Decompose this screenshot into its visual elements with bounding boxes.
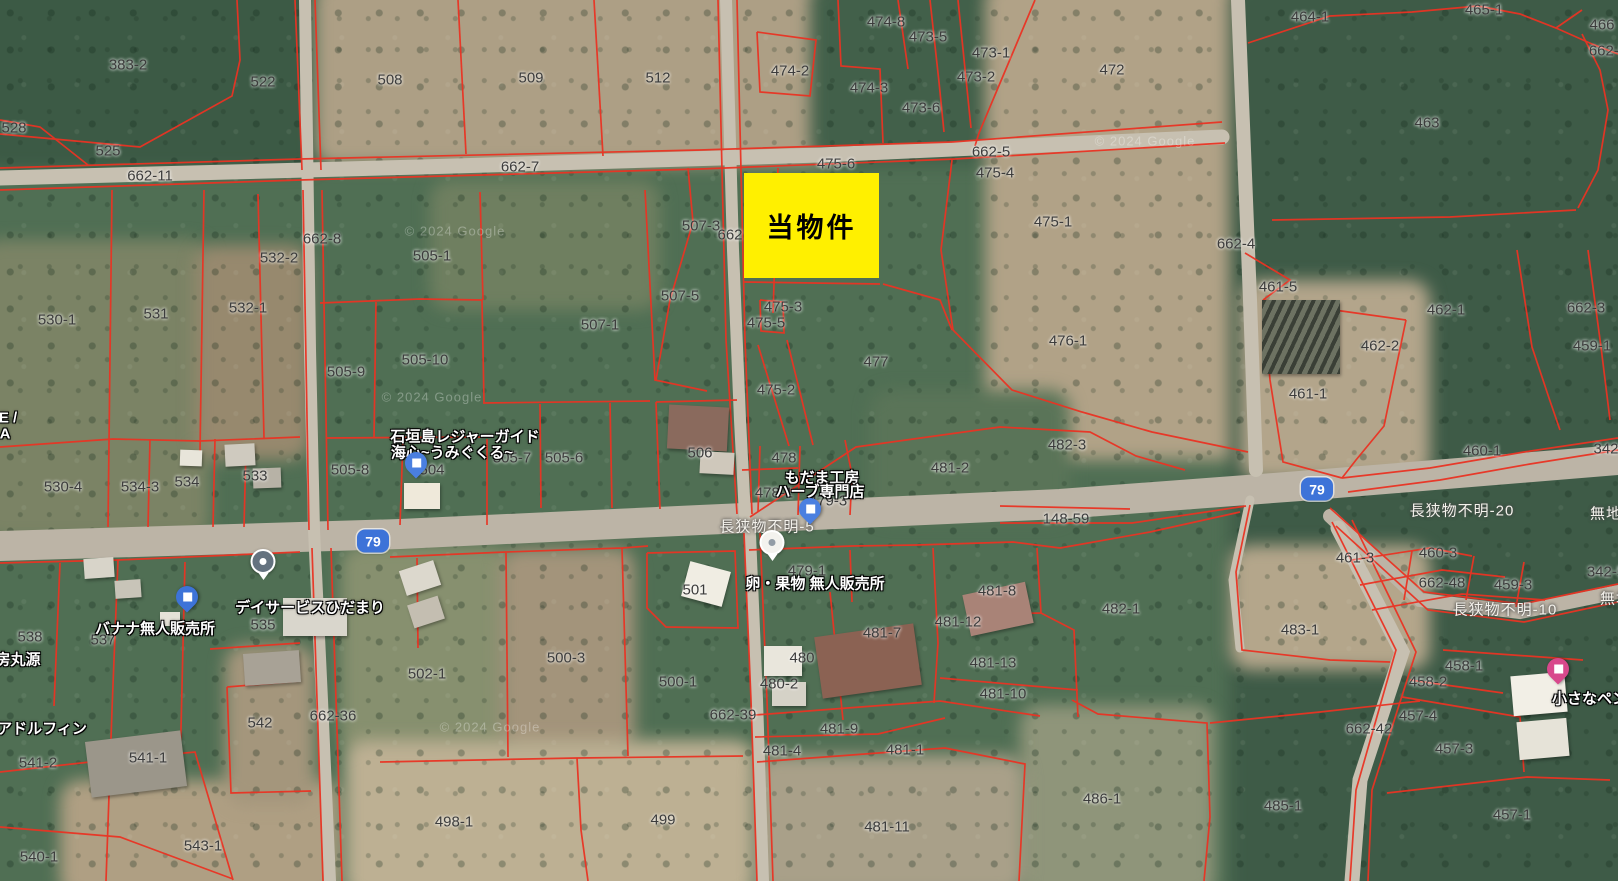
- herb-shop-pin[interactable]: [799, 498, 821, 520]
- dayservice-pin-icon: [251, 549, 276, 574]
- pension-pin-icon: [1542, 653, 1573, 684]
- satellite-map[interactable]: 383-2522508509512528525662-11662-7662-84…: [0, 0, 1618, 881]
- egg-fruit-stand-pin[interactable]: [760, 530, 785, 566]
- banana-stand-pin[interactable]: [176, 586, 198, 608]
- marker-layer: [0, 0, 1618, 881]
- pension-pin[interactable]: [1547, 658, 1569, 680]
- egg-fruit-stand-pin-icon: [760, 530, 785, 555]
- banana-stand-pin-icon: [171, 581, 202, 612]
- dayservice-pin[interactable]: [251, 549, 276, 585]
- leisure-guide-pin[interactable]: [405, 452, 427, 474]
- leisure-guide-pin-icon: [400, 447, 431, 478]
- herb-shop-pin-icon: [794, 493, 825, 524]
